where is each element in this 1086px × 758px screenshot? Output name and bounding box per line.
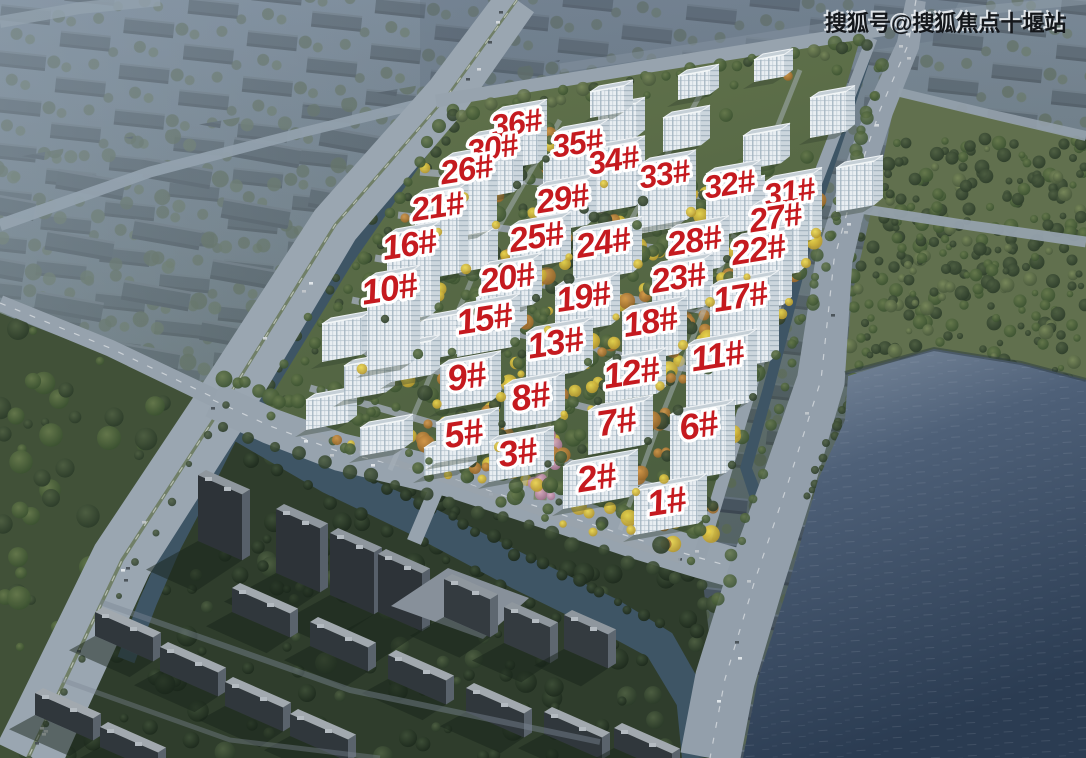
svg-text:2#: 2# bbox=[573, 454, 619, 501]
svg-text:1#: 1# bbox=[644, 478, 689, 525]
svg-text:9#: 9# bbox=[444, 353, 489, 400]
svg-text:3#: 3# bbox=[495, 429, 540, 476]
svg-text:8#: 8# bbox=[508, 373, 553, 420]
svg-text:搜狐号@搜狐焦点十堰站: 搜狐号@搜狐焦点十堰站 bbox=[825, 11, 1066, 36]
svg-text:5#: 5# bbox=[441, 410, 486, 457]
svg-text:6#: 6# bbox=[676, 402, 721, 449]
svg-text:7#: 7# bbox=[594, 398, 639, 445]
